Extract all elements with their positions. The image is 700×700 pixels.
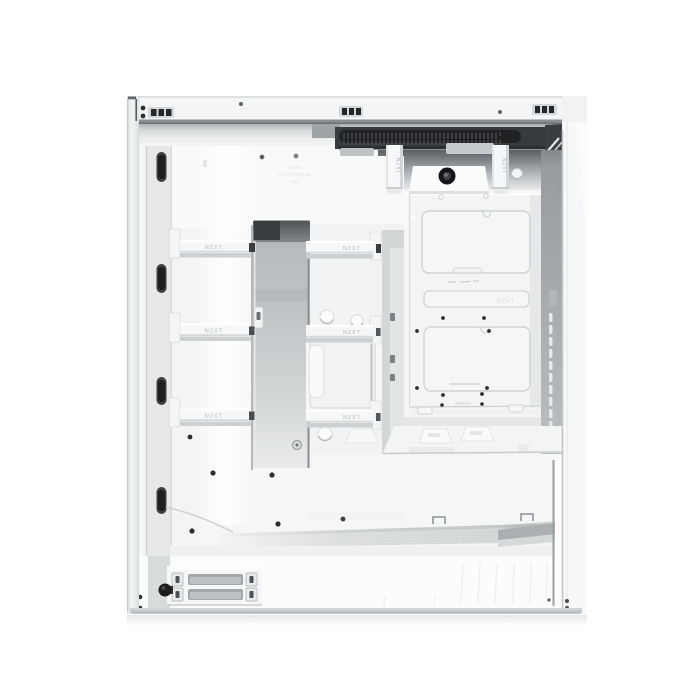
svg-text:B.AB: B.AB [289, 165, 302, 171]
svg-text:NZXT: NZXT [501, 158, 507, 174]
svg-text:NZXT: NZXT [343, 330, 361, 336]
svg-text:NZXT: NZXT [205, 328, 223, 334]
svg-text:NZXT: NZXT [205, 413, 223, 419]
svg-text:CONTINUUM: CONTINUUM [279, 172, 312, 178]
svg-text:NZXT: NZXT [395, 158, 401, 174]
svg-text:NZXT: NZXT [205, 245, 223, 251]
svg-text:NZXT: NZXT [343, 246, 361, 252]
svg-text:*02: *02 [291, 179, 299, 185]
svg-text:NZXT: NZXT [497, 299, 515, 305]
svg-text:NZXT: NZXT [343, 415, 361, 421]
